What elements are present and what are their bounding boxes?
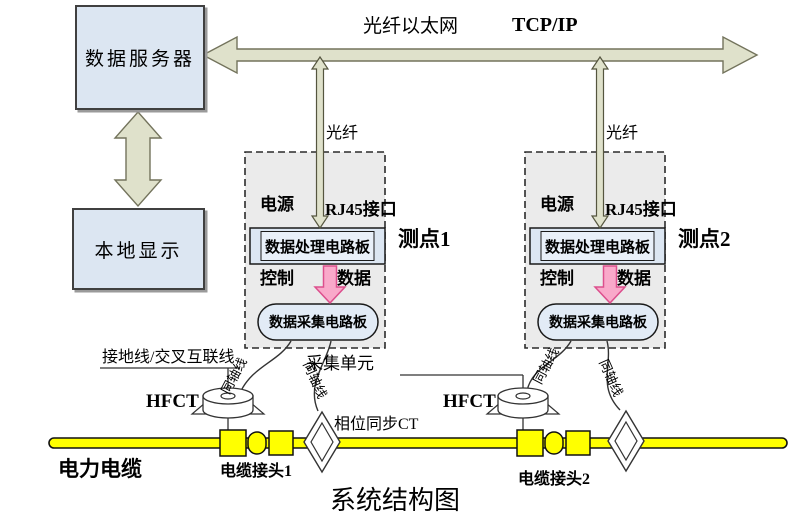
phase-ct-2	[608, 411, 644, 471]
acquisition-unit-label: 采集单元	[306, 355, 374, 374]
control-label-2: 控制	[540, 270, 574, 289]
ethernet-label: 光纤以太网	[363, 17, 458, 38]
rj45-label-2: RJ45接口	[605, 201, 677, 220]
rj45-label-1: RJ45接口	[325, 201, 397, 220]
processing-board-1-label: 数据处理电路板	[261, 231, 374, 261]
data-server-label: 数据服务器	[85, 44, 195, 71]
point-1-label: 测点1	[398, 228, 451, 251]
cable-joint-1-label: 电缆接头1	[220, 463, 292, 481]
hfct-label-1: HFCT	[146, 392, 199, 413]
diagram-title: 系统结构图	[330, 487, 460, 516]
processing-board-2-label: 数据处理电路板	[541, 231, 654, 261]
local-display-label: 本地显示	[94, 236, 182, 263]
system-structure-diagram: 数据服务器 本地显示 光纤以太网 TCP/IP 光纤 光纤 电源 RJ45接口 …	[0, 0, 792, 528]
fiber-label-1: 光纤	[326, 125, 358, 143]
power-label-2: 电源	[540, 196, 574, 215]
hfct-label-2: HFCT	[443, 392, 496, 413]
cable-joint-2-label: 电缆接头2	[518, 471, 590, 489]
local-display-node: 本地显示	[72, 208, 205, 290]
power-cable-label: 电力电缆	[58, 458, 142, 481]
fiber-label-2: 光纤	[606, 125, 638, 143]
point-2-label: 测点2	[678, 228, 731, 251]
data-label-1: 数据	[337, 270, 371, 289]
tcpip-label: TCP/IP	[512, 14, 578, 36]
cable-joint-1	[220, 430, 293, 456]
acquisition-board-2-label: 数据采集电路板	[538, 304, 658, 340]
acquisition-board-1-label: 数据采集电路板	[258, 304, 378, 340]
phase-ct-label: 相位同步CT	[334, 416, 418, 434]
ethernet-bus-arrow	[203, 37, 757, 73]
cable-joint-2	[517, 430, 590, 456]
server-display-arrow	[115, 112, 161, 206]
power-cable	[49, 438, 787, 448]
control-label-1: 控制	[260, 270, 294, 289]
hfct-sensor-2	[487, 388, 559, 418]
data-label-2: 数据	[617, 270, 651, 289]
data-server-node: 数据服务器	[75, 5, 205, 110]
power-label-1: 电源	[260, 196, 294, 215]
ground-line-label: 接地线/交叉互联线	[102, 349, 234, 367]
